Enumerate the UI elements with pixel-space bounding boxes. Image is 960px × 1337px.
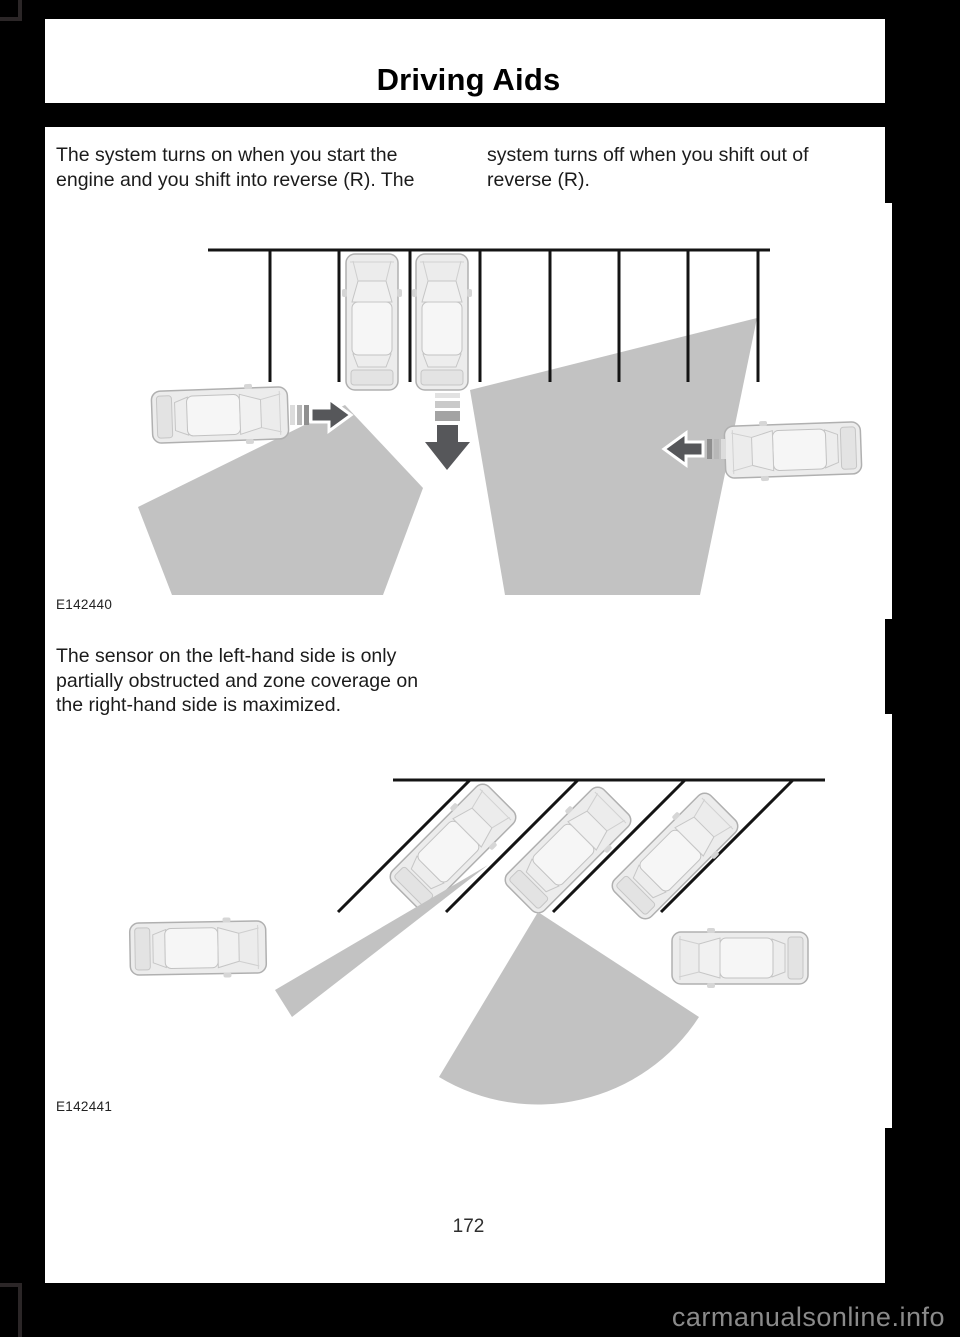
parked-car-icon (342, 254, 402, 390)
reverse-direction-arrow-icon (425, 393, 470, 470)
intro-line: engine and you shift into reverse (R). T… (56, 168, 414, 193)
figure-cross-traffic-angled (45, 770, 892, 1120)
figure-cross-traffic-perpendicular (45, 230, 892, 620)
frame-corner-top-left (0, 17, 22, 21)
approaching-car-right-icon (724, 418, 862, 483)
figure1-label: E142440 (56, 597, 112, 612)
sensor-note-paragraph: The sensor on the left-hand side is only… (56, 644, 418, 718)
frame-corner-bottom-left (18, 1283, 22, 1337)
note-line: the right-hand side is maximized. (56, 693, 418, 718)
site-watermark: carmanualsonline.info (672, 1302, 945, 1333)
host-vehicle-reversing-icon (412, 254, 472, 390)
page-title: Driving Aids (45, 62, 892, 98)
approaching-car-left-icon (151, 383, 289, 448)
chapter-edge-tab-bottom (885, 1128, 960, 1283)
sensor-zone-obstructed-left (275, 865, 488, 1017)
note-line: The sensor on the left-hand side is only (56, 644, 418, 669)
note-line: partially obstructed and zone coverage o… (56, 669, 418, 694)
figure2-label: E142441 (56, 1099, 112, 1114)
intro-paragraph-left-column: The system turns on when you start the e… (56, 143, 414, 192)
chapter-edge-tab-top (885, 19, 960, 203)
intro-paragraph-right-column: system turns off when you shift out of r… (487, 143, 809, 192)
page-number: 172 (45, 1216, 892, 1238)
header-divider-band (45, 103, 960, 127)
intro-line: The system turns on when you start the (56, 143, 414, 168)
approaching-car-left-icon (129, 917, 266, 979)
sensor-zone-right (470, 318, 757, 595)
intro-line: system turns off when you shift out of (487, 143, 809, 168)
sensor-zone-maximized-right (439, 912, 699, 1104)
parked-car-icon (606, 787, 745, 926)
approaching-car-right-icon (672, 928, 808, 988)
chapter-edge-tab-middle (885, 619, 960, 714)
intro-line: reverse (R). (487, 168, 809, 193)
